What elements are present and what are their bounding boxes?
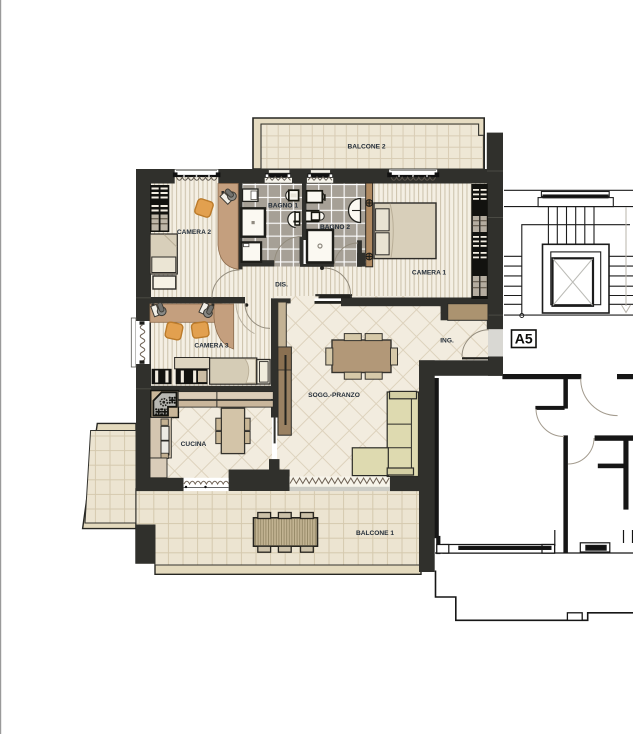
svg-text:DIS.: DIS. <box>275 282 288 289</box>
svg-text:CAMERA 1: CAMERA 1 <box>412 270 447 277</box>
svg-text:ING.: ING. <box>440 338 454 345</box>
svg-text:A5: A5 <box>515 331 533 347</box>
svg-text:BAGNO 2: BAGNO 2 <box>320 224 350 231</box>
svg-text:SOGG.-PRANZO: SOGG.-PRANZO <box>308 392 360 399</box>
svg-text:CAMERA 2: CAMERA 2 <box>177 229 212 236</box>
svg-text:BALCONE 2: BALCONE 2 <box>347 144 385 151</box>
svg-text:CUCINA: CUCINA <box>181 441 207 448</box>
svg-text:BAGNO 1: BAGNO 1 <box>268 203 298 210</box>
svg-text:CAMERA 3: CAMERA 3 <box>194 343 229 350</box>
svg-text:BALCONE 1: BALCONE 1 <box>356 530 394 537</box>
